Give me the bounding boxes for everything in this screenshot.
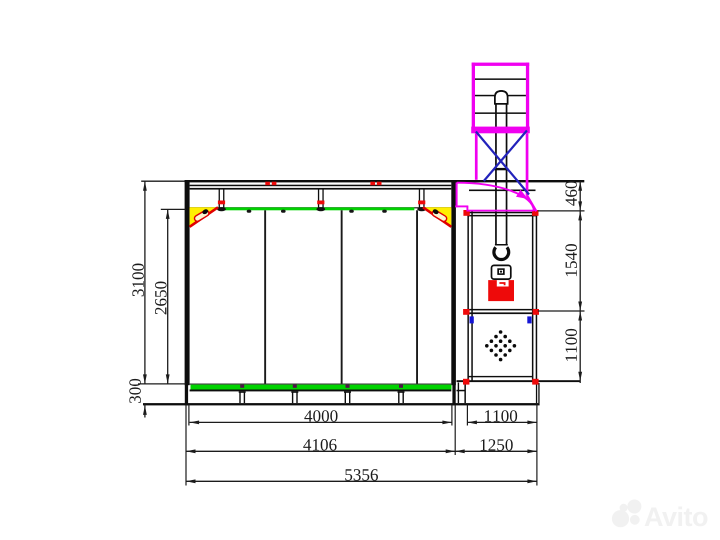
svg-text:Avito: Avito bbox=[644, 502, 708, 532]
